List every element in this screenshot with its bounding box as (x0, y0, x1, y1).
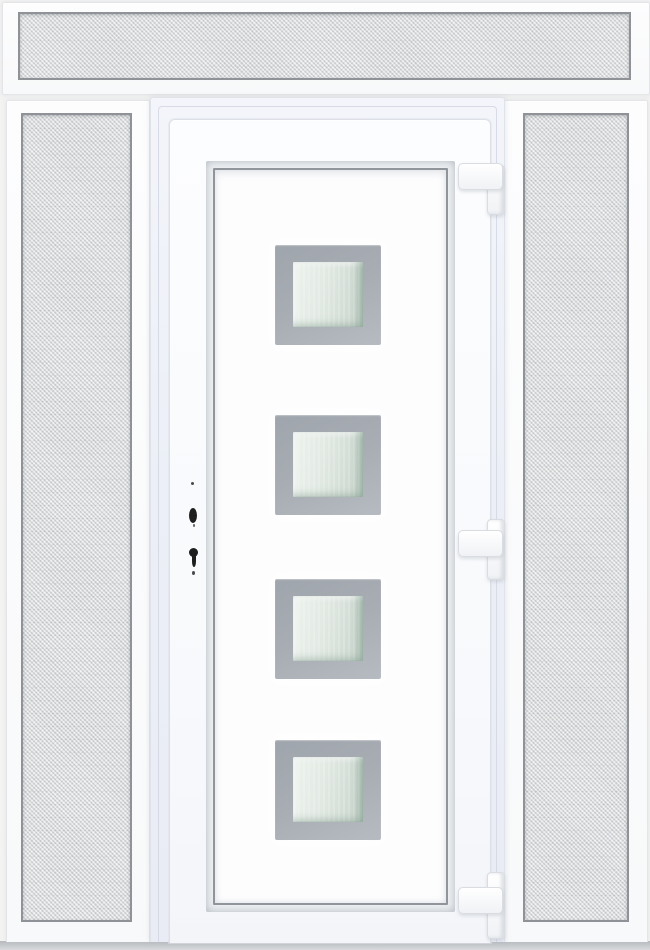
glazing-panel (275, 245, 381, 345)
screw-dot (192, 571, 195, 575)
right-sidelight (504, 100, 648, 942)
glazing-panel (275, 415, 381, 515)
screw-dot (191, 482, 194, 485)
door-leaf (169, 119, 491, 943)
transom-window (2, 2, 650, 95)
hinge-leaf-plate (458, 163, 503, 190)
door-frame (150, 97, 505, 942)
glazing-glass (293, 432, 363, 497)
transom-glass (18, 12, 631, 80)
entry-door-product-photo (0, 0, 650, 950)
hinge-leaf-plate (458, 887, 503, 914)
screw-dot (193, 524, 195, 527)
handle-spindle-hole (189, 508, 197, 523)
glazing-glass (293, 596, 363, 661)
glazing-glass (293, 262, 363, 327)
right-sidelight-glass (523, 113, 629, 922)
left-sidelight-glass (21, 113, 132, 922)
left-sidelight (6, 100, 150, 942)
glazing-panel (275, 579, 381, 679)
glazing-panel (275, 740, 381, 840)
glazing-glass (293, 757, 363, 822)
hinge-leaf-plate (458, 530, 503, 557)
keyhole (189, 548, 198, 570)
